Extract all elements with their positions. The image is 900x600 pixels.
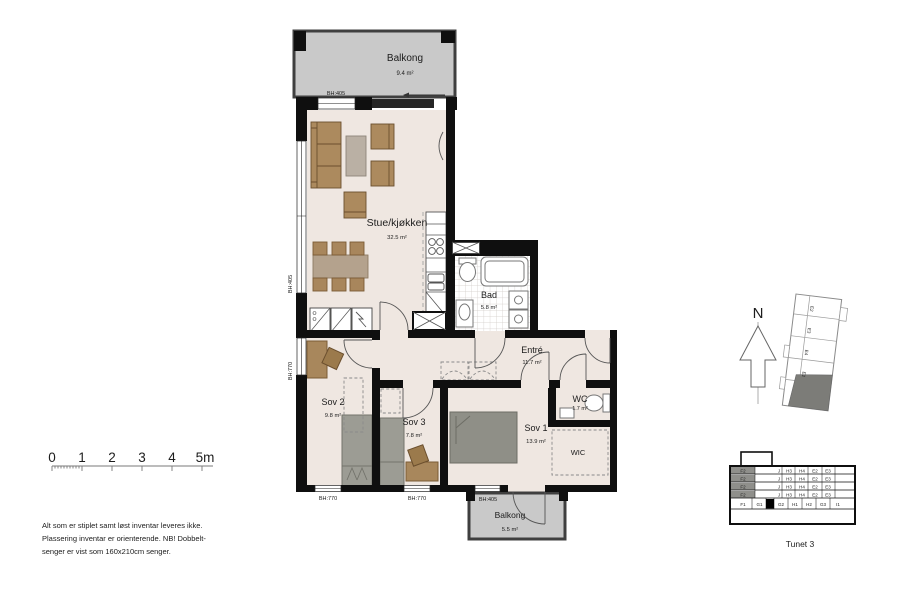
armchair-3 [344, 192, 366, 218]
facade-cell: H3 [786, 469, 792, 474]
facade-cell: G2 [778, 502, 785, 507]
facade-cell: E2 [812, 485, 818, 490]
facade-cell: H3 [786, 485, 792, 490]
balcony-top-floor [294, 31, 455, 97]
room-area: 7.8 m² [406, 433, 422, 439]
bh-label-balcony: BH:405 [479, 497, 497, 503]
floor-entre [380, 338, 610, 380]
facade-cell: J [778, 469, 780, 474]
facade-cell: E2 [812, 477, 818, 482]
tech-box-3 [352, 308, 372, 332]
facade-cell: F2 [740, 477, 746, 482]
room-label: Stue/kjøkken [367, 217, 428, 229]
kitchen-counter [426, 212, 446, 316]
keyplan-bump-2 [779, 377, 785, 390]
scale-tick-3: 3 [138, 450, 146, 465]
bh-label-left-lower: BH:770 [288, 362, 294, 380]
bathroom: Bad 5.8 m² [455, 256, 530, 331]
sink-icon [459, 304, 470, 320]
note-line-3: senger er vist som 160x210cm senger. [42, 547, 171, 556]
keyplan-bump-1 [783, 345, 789, 358]
bh-label-sov3: BH:770 [408, 496, 426, 502]
facade-cell: E3 [825, 477, 831, 482]
note-line-1: Alt som er stiplet samt løst inventar le… [42, 521, 202, 530]
room-area: 13.9 m² [526, 439, 546, 445]
facade-cell: G3 [820, 502, 827, 507]
project-title: Tunet 3 [786, 539, 815, 549]
north-arrow-icon [740, 326, 776, 387]
room-area: 5.5 m² [502, 527, 518, 533]
desk-sov3 [406, 462, 438, 481]
facade-cell: F2 [740, 493, 746, 498]
room-label: WIC [571, 448, 586, 457]
room-area: 9.4 m² [396, 71, 413, 77]
toilet-icon [460, 263, 476, 282]
note-line-2: Plassering inventar er orienterende. NB!… [42, 534, 206, 543]
facade-cell: H2 [806, 502, 812, 507]
room-label: Balkong [495, 510, 526, 520]
facade-cell: I1 [836, 502, 840, 507]
scale-tick-0: 0 [48, 450, 56, 465]
key-plan: E2 E3 E4 E2 [777, 293, 848, 411]
facade-cell: H4 [799, 493, 805, 498]
facade-cell: H4 [799, 485, 805, 490]
scale-tick-5m: 5m [196, 450, 215, 465]
scale-tick-4: 4 [168, 450, 176, 465]
balcony-top-corner-left [294, 31, 306, 51]
keyplan-bump-3 [839, 308, 848, 322]
bh-label-sov2: BH:770 [319, 496, 337, 502]
facade-cell: E3 [825, 493, 831, 498]
sofa [311, 122, 341, 188]
armchair-1 [371, 124, 394, 149]
facade-cell: H4 [799, 477, 805, 482]
room-area: 1.7 m² [572, 406, 588, 412]
north-compass: N [740, 305, 776, 404]
washer-drum [515, 296, 523, 304]
facade-roof-box [741, 452, 772, 466]
room-area: 9.8 m² [325, 413, 341, 419]
room-label: Balkong [387, 53, 423, 64]
disclaimer-notes: Alt som er stiplet samt løst inventar le… [42, 521, 206, 556]
facade-cell: H4 [799, 469, 805, 474]
room-area: 32.5 m² [387, 235, 407, 241]
bed-sov2 [342, 415, 372, 487]
room-label: WC [573, 394, 588, 404]
facade-cell: H3 [786, 477, 792, 482]
scale-bar-line [52, 466, 213, 471]
facade-cell: E3 [825, 469, 831, 474]
wc-toilet-tank [603, 394, 610, 412]
facade-key: F2JH3H4E2E3 F2JH3H4E2E3 F2JH3H4E2E3 F2JH… [730, 452, 855, 549]
sliding-door-leaf [372, 99, 434, 108]
balcony-bottom-corner-right [559, 492, 568, 501]
dryer-drum [515, 315, 523, 323]
facade-highlighted-unit [766, 499, 774, 509]
bh-label-left-upper: BH:405 [288, 275, 294, 293]
room-area: 5.8 m² [481, 305, 497, 311]
floorplan-page: Balkong 9.4 m² Balkong 5.5 m² Bad 5.8 m² [0, 0, 900, 600]
north-label: N [753, 305, 764, 322]
bed-sov3 [380, 418, 404, 487]
facade-cell: G1 [756, 502, 763, 507]
facade-cell: J [778, 493, 780, 498]
facade-cell: H1 [792, 502, 798, 507]
facade-cell: E3 [825, 485, 831, 490]
facade-cell: J [778, 485, 780, 490]
facade-cell: E2 [812, 493, 818, 498]
room-label: Sov 3 [402, 417, 425, 427]
balcony-top: Balkong 9.4 m² [294, 31, 455, 97]
facade-cell: F2 [740, 469, 746, 474]
room-label: Sov 2 [321, 397, 344, 407]
scale-tick-1: 1 [78, 450, 86, 465]
room-label: Bad [481, 290, 497, 300]
coffee-table [346, 136, 366, 176]
balcony-top-corner-right [441, 31, 455, 43]
facade-cell: F2 [740, 485, 746, 490]
room-area: 11.7 m² [522, 360, 541, 366]
balcony-bottom-corner-left [466, 492, 475, 501]
floorplan-drawing: Balkong 9.4 m² Balkong 5.5 m² Bad 5.8 m² [0, 0, 900, 600]
bathtub-inner [485, 261, 524, 282]
room-label: Entré [521, 345, 543, 355]
scale-bar: 0 1 2 3 4 5m [48, 450, 214, 471]
scale-tick-2: 2 [108, 450, 116, 465]
facade-cell: E2 [812, 469, 818, 474]
facade-cell: J [778, 477, 780, 482]
room-label: Sov 1 [524, 423, 547, 433]
facade-cell: H3 [786, 493, 792, 498]
bed-sov1 [450, 412, 517, 463]
armchair-2 [371, 161, 394, 186]
facade-cell: F1 [740, 502, 746, 507]
dining-table [313, 255, 368, 278]
bh-label-top: BH:405 [327, 91, 345, 97]
